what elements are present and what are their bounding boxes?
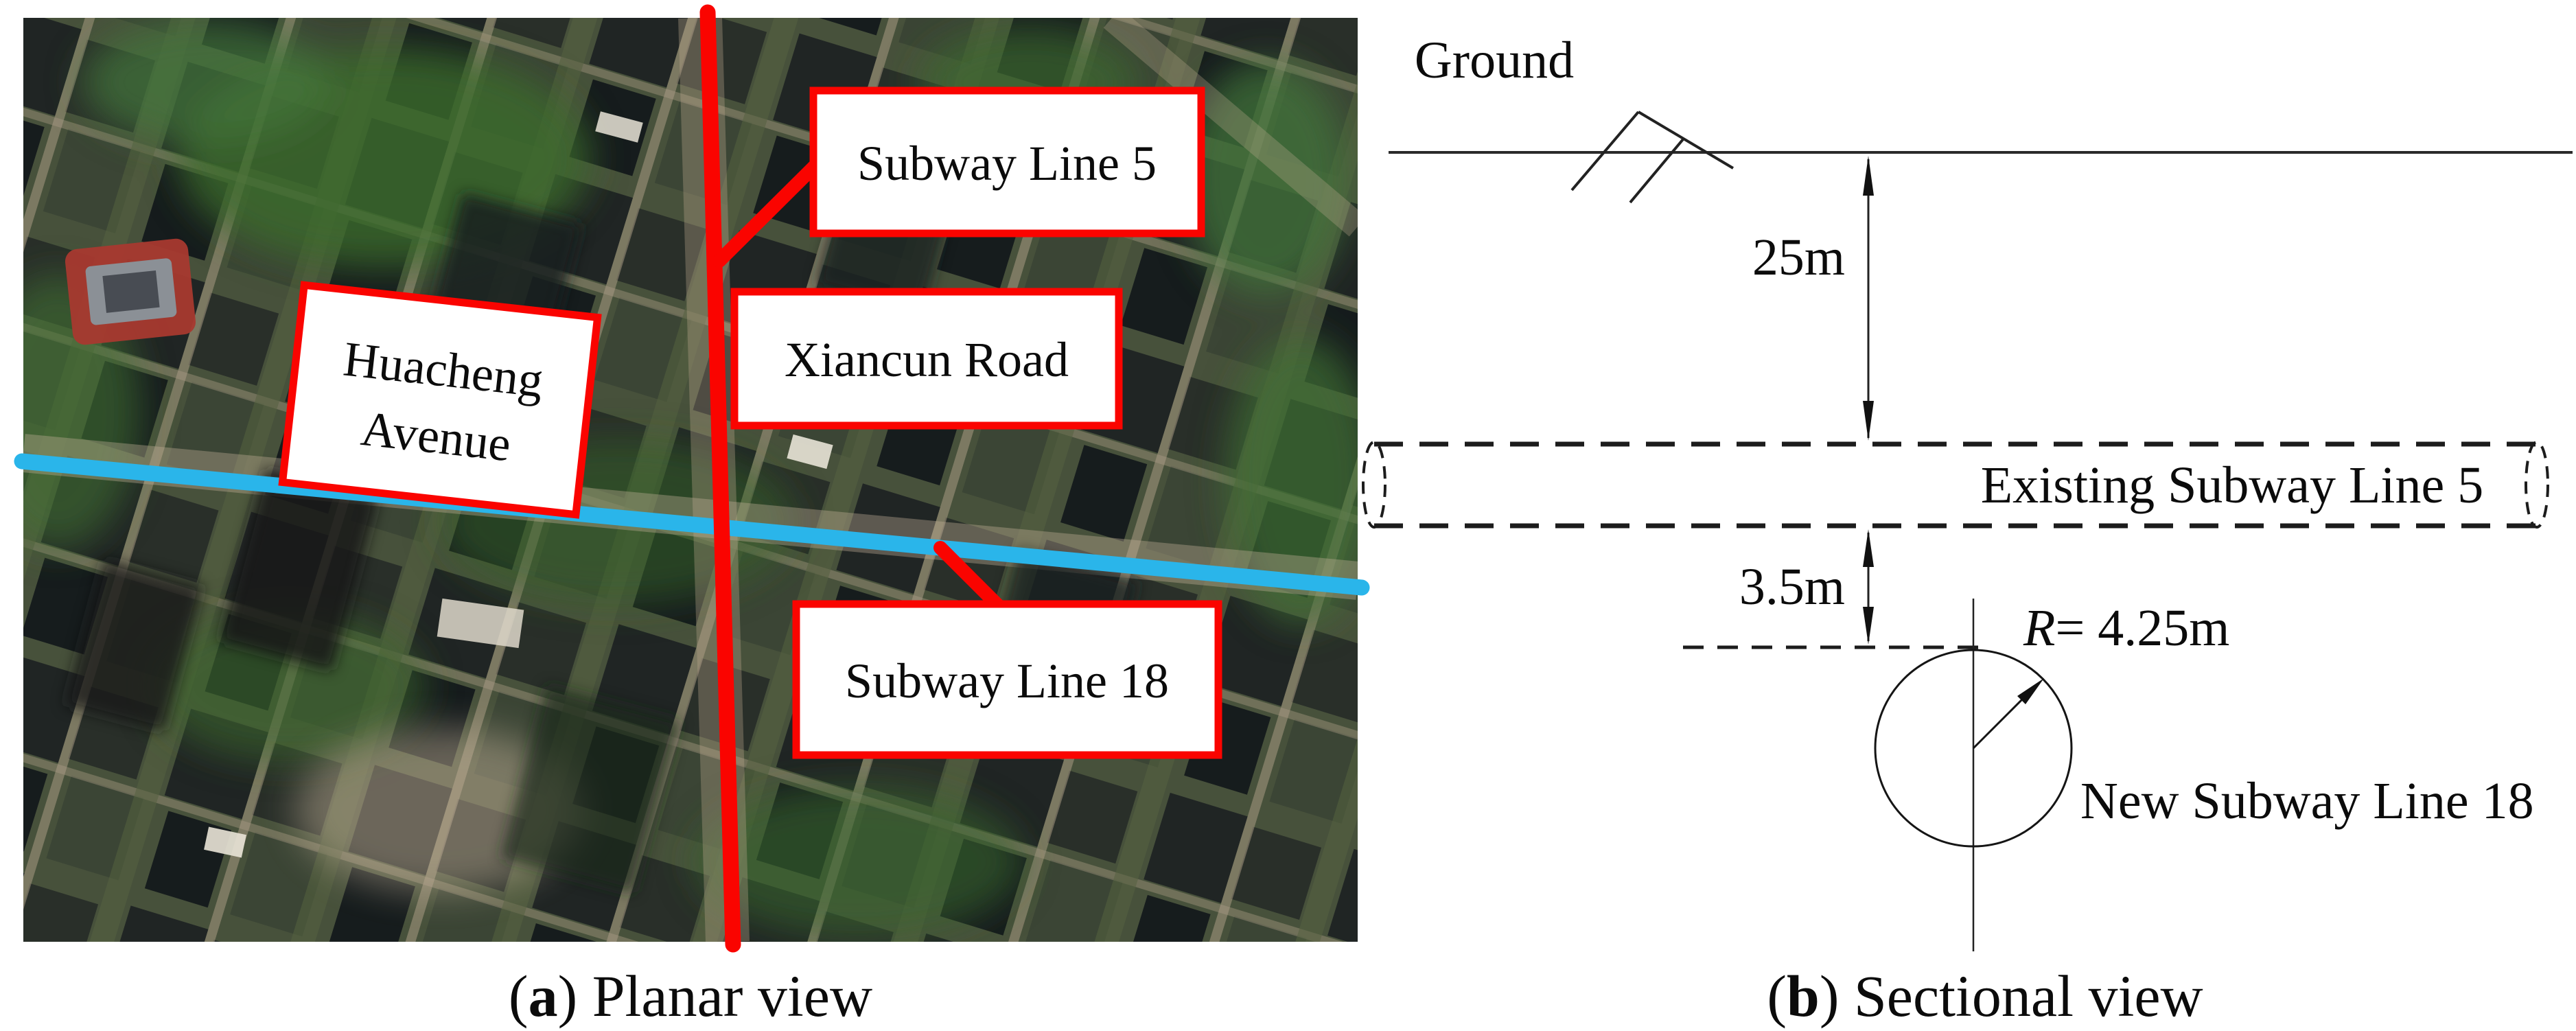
radius-symbol: R [2023,599,2055,657]
radius-value: = 4.25m [2055,599,2229,657]
label-box-xiancun-road: Xiancun Road [734,292,1119,426]
label-box-subway-line-18: Subway Line 18 [796,604,1218,755]
satellite-photo: Subway Line 5 Xiancun Road Huacheng Aven… [0,12,1376,945]
tube-left-end-cap [1363,442,1385,527]
dimension-25m: 25m [1752,156,1874,441]
radius-label: R= 4.25m [2023,599,2229,657]
ground-surface-symbol [1572,112,1733,202]
label-xiancun-road: Xiancun Road [785,332,1069,387]
dimension-3-5m: 3.5m [1739,529,1874,645]
tube-right-end-cap [2526,442,2548,527]
caption-b-letter: b [1787,963,1820,1029]
label-box-subway-line-5: Subway Line 5 [813,91,1201,233]
ground-label: Ground [1415,32,1574,89]
dimension-25m-arrow-down [1863,401,1874,441]
label-subway-line-18: Subway Line 18 [845,653,1169,708]
existing-subway-line-5-label: Existing Subway Line 5 [1981,456,2484,514]
sectional-diagram: Ground Existing Subway Line 5 25m [1363,32,2573,951]
dimension-25m-arrow-up [1863,156,1874,196]
figure-canvas: Subway Line 5 Xiancun Road Huacheng Aven… [0,0,2576,1031]
existing-tube: Existing Subway Line 5 [1363,442,2548,527]
caption-a-text: ) Planar view [558,963,873,1029]
label-box-huacheng-avenue: Huacheng Avenue [282,285,597,514]
caption-a-paren: ( [509,963,529,1029]
caption-a-letter: a [529,963,558,1029]
dimension-3-5m-arrow-up [1863,529,1874,567]
dimension-3-5m-arrow-down [1863,607,1874,645]
figure-page: Subway Line 5 Xiancun Road Huacheng Aven… [0,0,2576,1031]
new-tunnel: R= 4.25m New Subway Line 18 [1875,599,2534,951]
caption-panel-b: (b) Sectional view [1767,963,2203,1029]
new-subway-line-18-label: New Subway Line 18 [2080,772,2534,830]
dimension-25m-label: 25m [1752,229,1845,286]
label-subway-line-5: Subway Line 5 [857,136,1157,191]
caption-panel-a: (a) Planar view [509,963,872,1029]
dimension-3-5m-label: 3.5m [1739,558,1845,616]
caption-b-text: ) Sectional view [1820,963,2203,1029]
satellite-stadium [64,238,197,346]
radius-arrow-line [1973,698,2023,748]
label-box-huacheng-avenue-frame [282,285,597,514]
caption-b-paren: ( [1767,963,1787,1029]
